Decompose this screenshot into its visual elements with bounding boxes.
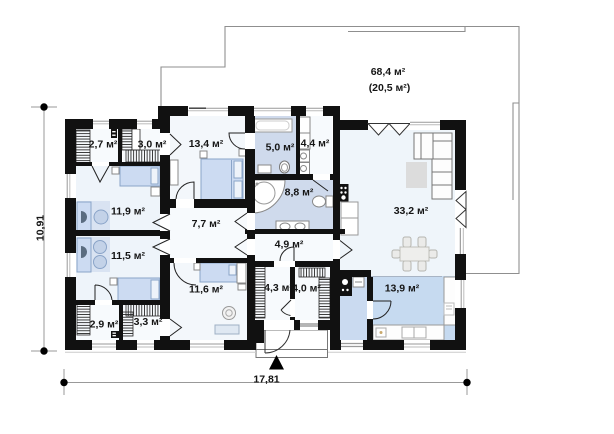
- svg-text:4,0 м²: 4,0 м²: [292, 283, 321, 295]
- svg-text:17,81: 17,81: [253, 374, 279, 386]
- svg-text:33,2 м²: 33,2 м²: [394, 205, 429, 217]
- svg-text:2,9 м²: 2,9 м²: [90, 319, 119, 331]
- svg-text:13,9 м²: 13,9 м²: [385, 283, 420, 295]
- svg-text:11,9 м²: 11,9 м²: [111, 206, 146, 218]
- svg-text:11,6 м²: 11,6 м²: [189, 284, 224, 296]
- svg-text:3,3 м²: 3,3 м²: [134, 316, 163, 328]
- svg-text:5,0 м²: 5,0 м²: [266, 142, 295, 154]
- svg-text:10,91: 10,91: [35, 215, 47, 241]
- svg-text:68,4 м²: 68,4 м²: [371, 66, 406, 78]
- svg-text:13,4 м²: 13,4 м²: [189, 138, 224, 150]
- svg-text:4,9 м²: 4,9 м²: [275, 239, 304, 251]
- svg-text:8,8 м²: 8,8 м²: [285, 187, 314, 199]
- svg-text:11,5 м²: 11,5 м²: [111, 250, 146, 262]
- svg-text:2,7 м²: 2,7 м²: [89, 139, 118, 151]
- svg-text:7,7 м²: 7,7 м²: [192, 218, 221, 230]
- svg-text:(20,5 м²): (20,5 м²): [369, 82, 411, 94]
- svg-text:3,0 м²: 3,0 м²: [138, 139, 167, 151]
- svg-text:4,4 м²: 4,4 м²: [301, 138, 330, 150]
- svg-text:4,3 м²: 4,3 м²: [264, 282, 293, 294]
